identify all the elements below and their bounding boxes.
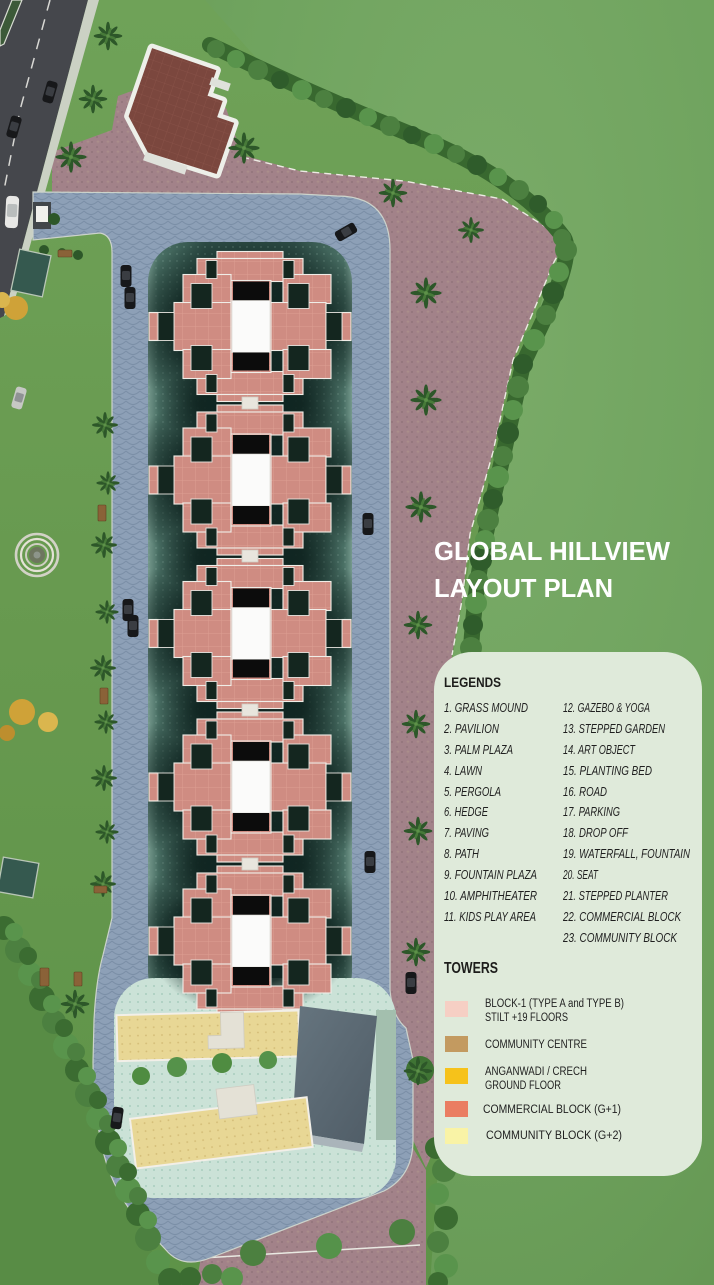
svg-text:12. GAZEBO & YOGA: 12. GAZEBO & YOGA (563, 701, 650, 715)
svg-text:1. GRASS MOUND: 1. GRASS MOUND (444, 701, 528, 715)
svg-text:5. PERGOLA: 5. PERGOLA (444, 785, 501, 799)
svg-text:GROUND FLOOR: GROUND FLOOR (485, 1080, 561, 1092)
svg-text:21. STEPPED PLANTER: 21. STEPPED PLANTER (562, 889, 668, 903)
svg-text:4. LAWN: 4. LAWN (444, 764, 483, 778)
svg-text:7. PAVING: 7. PAVING (444, 826, 489, 840)
svg-text:BLOCK-1 (TYPE A and TYPE B): BLOCK-1 (TYPE A and TYPE B) (485, 998, 624, 1010)
svg-text:18. DROP OFF: 18. DROP OFF (563, 826, 629, 840)
svg-text:17. PARKING: 17. PARKING (563, 805, 620, 819)
svg-text:6. HEDGE: 6. HEDGE (444, 805, 488, 819)
svg-text:2. PAVILION: 2. PAVILION (443, 722, 500, 736)
svg-text:LAYOUT PLAN: LAYOUT PLAN (434, 573, 613, 603)
svg-text:10. AMPHITHEATER: 10. AMPHITHEATER (444, 889, 537, 903)
svg-text:TOWERS: TOWERS (444, 960, 498, 977)
svg-text:COMMERCIAL BLOCK (G+1): COMMERCIAL BLOCK (G+1) (483, 1104, 621, 1116)
svg-text:14. ART OBJECT: 14. ART OBJECT (563, 743, 636, 757)
svg-text:19. WATERFALL, FOUNTAIN: 19. WATERFALL, FOUNTAIN (563, 847, 691, 861)
svg-text:3. PALM PLAZA: 3. PALM PLAZA (444, 743, 513, 757)
svg-text:16. ROAD: 16. ROAD (563, 785, 607, 799)
svg-text:COMMUNITY BLOCK (G+2): COMMUNITY BLOCK (G+2) (486, 1130, 622, 1142)
svg-text:COMMUNITY CENTRE: COMMUNITY CENTRE (485, 1039, 587, 1051)
svg-text:15. PLANTING BED: 15. PLANTING BED (563, 764, 652, 778)
svg-text:STILT +19 FLOORS: STILT +19 FLOORS (485, 1012, 568, 1024)
svg-text:9. FOUNTAIN PLAZA: 9. FOUNTAIN PLAZA (444, 868, 537, 882)
svg-text:13. STEPPED GARDEN: 13. STEPPED GARDEN (563, 722, 666, 736)
svg-text:GLOBAL HILLVIEW: GLOBAL HILLVIEW (434, 536, 670, 566)
svg-text:ANGANWADI / CRECH: ANGANWADI / CRECH (485, 1066, 587, 1078)
svg-text:LEGENDS: LEGENDS (444, 675, 501, 690)
svg-text:20. SEAT: 20. SEAT (562, 868, 599, 882)
svg-text:11. KIDS PLAY AREA: 11. KIDS PLAY AREA (444, 910, 536, 924)
svg-text:23. COMMUNITY BLOCK: 23. COMMUNITY BLOCK (562, 931, 677, 945)
svg-text:8. PATH: 8. PATH (444, 847, 480, 861)
svg-text:22. COMMERCIAL BLOCK: 22. COMMERCIAL BLOCK (562, 910, 681, 924)
